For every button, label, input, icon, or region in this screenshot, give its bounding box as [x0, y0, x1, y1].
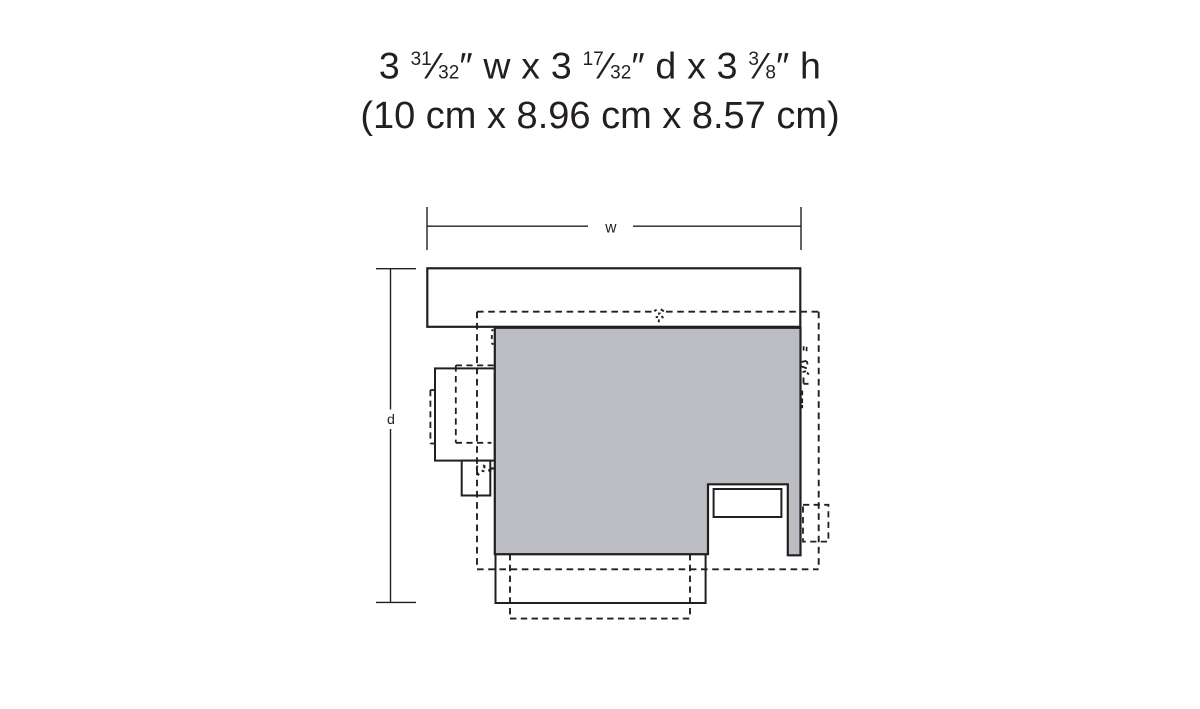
- svg-text:d: d: [387, 412, 395, 428]
- svg-text:w: w: [604, 219, 617, 236]
